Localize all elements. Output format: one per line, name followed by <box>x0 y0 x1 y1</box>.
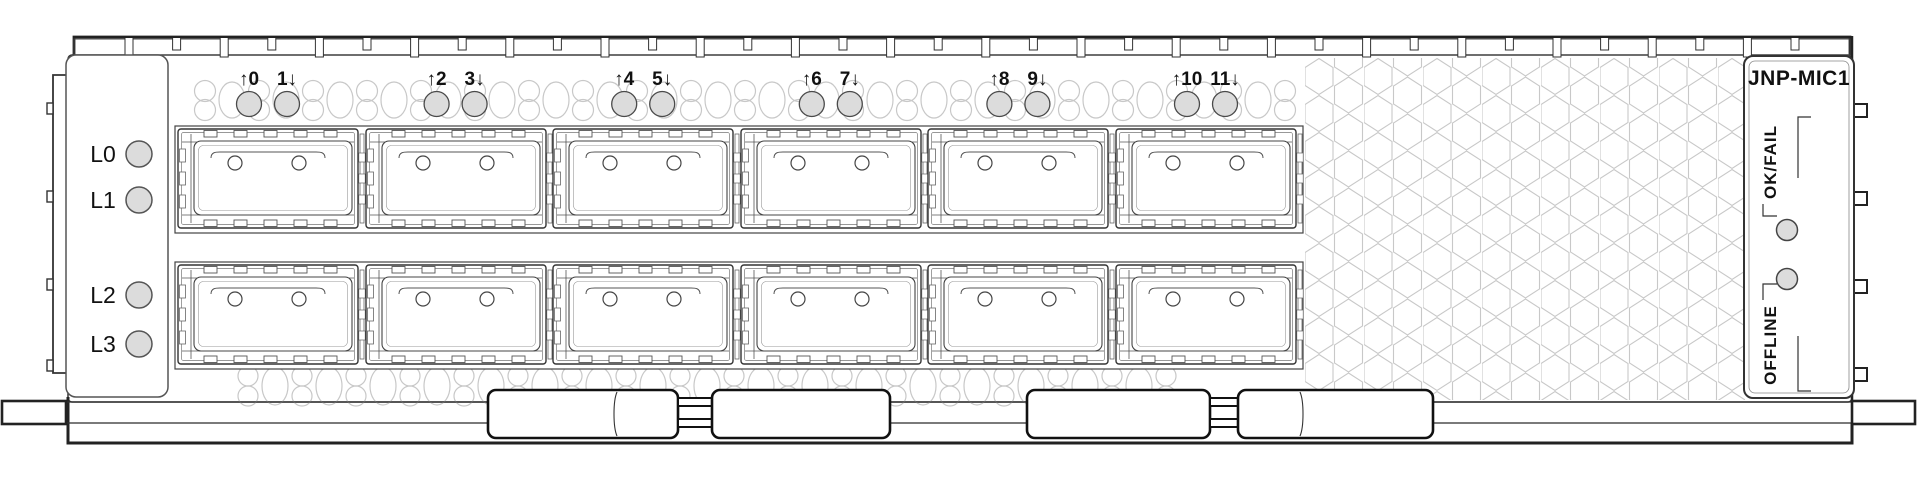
lane-led-panel: L0 L1 L2 L3 <box>66 55 168 397</box>
port-led-2 <box>424 92 449 117</box>
port-led-label-1: 1↓ <box>277 69 297 90</box>
lane-label-l2: L2 <box>90 282 116 308</box>
rail-left-endcap <box>2 401 66 424</box>
port-led-0 <box>237 92 262 117</box>
lane-label-l3: L3 <box>90 331 116 357</box>
port-led-6 <box>799 92 824 117</box>
qsfp-cage <box>178 129 365 228</box>
qsfp-cage <box>1116 265 1303 364</box>
lane-label-l1: L1 <box>90 187 116 213</box>
lane-led-l0 <box>126 141 152 167</box>
handle-link <box>678 419 712 427</box>
cage-row-2 <box>178 265 1303 364</box>
qsfp-cage <box>928 265 1115 364</box>
handle-link <box>1210 419 1238 427</box>
qsfp-cage <box>178 265 365 364</box>
lane-led-l1 <box>126 187 152 213</box>
qsfp-cage <box>741 265 928 364</box>
cage-row-1 <box>178 129 1303 228</box>
offline-label: OFFLINE <box>1761 305 1780 385</box>
port-led-label-3: 3↓ <box>465 69 485 90</box>
model-label: JNP-MIC1 <box>1748 67 1850 90</box>
port-led-5 <box>650 92 675 117</box>
lane-label-l0: L0 <box>90 141 116 167</box>
faceplate-drawing: ↑01↓↑23↓↑45↓↑67↓↑89↓↑1011↓ L0 L1 L2 L3 J… <box>0 0 1920 484</box>
qsfp-cage <box>366 129 553 228</box>
offline-led <box>1777 269 1798 290</box>
port-led-3 <box>462 92 487 117</box>
hex-vent-field <box>1305 58 1745 400</box>
port-led-label-5: 5↓ <box>652 69 672 90</box>
port-led-10 <box>1175 92 1200 117</box>
port-led-label-8: ↑8 <box>989 69 1009 90</box>
bottom-chassis-band <box>68 397 1852 443</box>
top-gasket-band <box>74 39 1850 55</box>
handle-left-inner <box>712 390 890 438</box>
qsfp-cage <box>1116 129 1303 228</box>
port-led-label-7: 7↓ <box>840 69 860 90</box>
lane-led-l3 <box>126 331 152 357</box>
port-led-label-11: 11↓ <box>1210 69 1240 90</box>
ok-fail-led <box>1777 220 1798 241</box>
jnp-mic1-faceplate-diagram: ↑01↓↑23↓↑45↓↑67↓↑89↓↑1011↓ L0 L1 L2 L3 J… <box>0 0 1920 484</box>
top-gasket-strip <box>74 37 1850 55</box>
qsfp-cage <box>553 265 740 364</box>
handle-left-outer <box>488 390 678 438</box>
top-gasket-slots <box>125 38 1799 57</box>
rail-right-endcap <box>1852 401 1915 424</box>
handle-link <box>1210 398 1238 406</box>
port-led-11 <box>1213 92 1238 117</box>
ok-fail-label: OK/FAIL <box>1761 125 1780 199</box>
port-led-9 <box>1025 92 1050 117</box>
qsfp-cage <box>366 265 553 364</box>
handle-right-outer <box>1238 390 1433 438</box>
status-panel: JNP-MIC1 OK/FAIL OFFLINE <box>1744 56 1854 398</box>
port-led-label-10: ↑10 <box>1172 69 1203 90</box>
handle-link <box>678 398 712 406</box>
qsfp-cage <box>553 129 740 228</box>
port-led-label-2: ↑2 <box>427 69 447 90</box>
lane-panel-outline <box>66 55 168 397</box>
port-led-1 <box>275 92 300 117</box>
port-led-7 <box>837 92 862 117</box>
handle-right-inner <box>1027 390 1210 438</box>
bottom-rail <box>2 402 1915 423</box>
qsfp-cage <box>928 129 1115 228</box>
port-led-4 <box>612 92 637 117</box>
port-led-8 <box>987 92 1012 117</box>
port-led-label-9: 9↓ <box>1027 69 1047 90</box>
port-led-label-0: ↑0 <box>239 69 259 90</box>
port-led-label-4: ↑4 <box>614 69 635 90</box>
port-led-label-6: ↑6 <box>802 69 822 90</box>
qsfp-cage <box>741 129 928 228</box>
lane-led-l2 <box>126 282 152 308</box>
